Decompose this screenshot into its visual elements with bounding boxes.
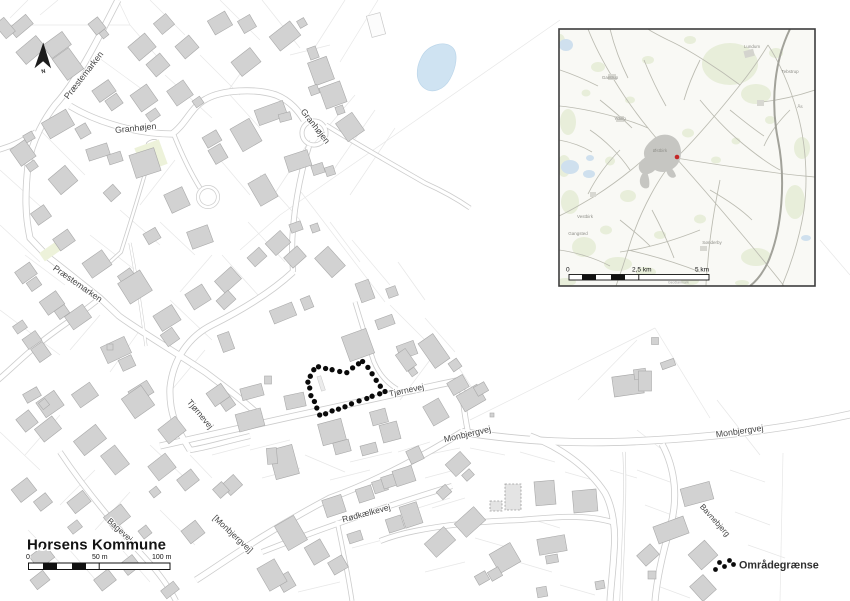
svg-text:0: 0 — [566, 267, 570, 274]
svg-text:Yding: Yding — [614, 116, 626, 121]
svg-text:Gangsted: Gangsted — [568, 231, 588, 236]
svg-text:5 km: 5 km — [695, 267, 709, 274]
svg-text:50 m: 50 m — [92, 554, 108, 561]
svg-text:Ås: Ås — [797, 103, 803, 109]
svg-text:GeoDanmark: GeoDanmark — [668, 281, 689, 285]
svg-text:Østbirk: Østbirk — [653, 148, 668, 153]
svg-text:Vestbirk: Vestbirk — [577, 214, 594, 219]
svg-text:0: 0 — [26, 554, 30, 561]
svg-text:Lundum: Lundum — [744, 44, 761, 49]
svg-text:Gantrup: Gantrup — [602, 75, 619, 80]
svg-text:Horsens Kommune: Horsens Kommune — [27, 537, 166, 554]
svg-text:Områdegrænse: Områdegrænse — [739, 560, 819, 572]
svg-text:Tebstrup: Tebstrup — [781, 69, 799, 74]
svg-text:Sønderby: Sønderby — [702, 240, 722, 245]
svg-text:100 m: 100 m — [152, 554, 172, 561]
svg-text:2,5 km: 2,5 km — [632, 267, 652, 274]
